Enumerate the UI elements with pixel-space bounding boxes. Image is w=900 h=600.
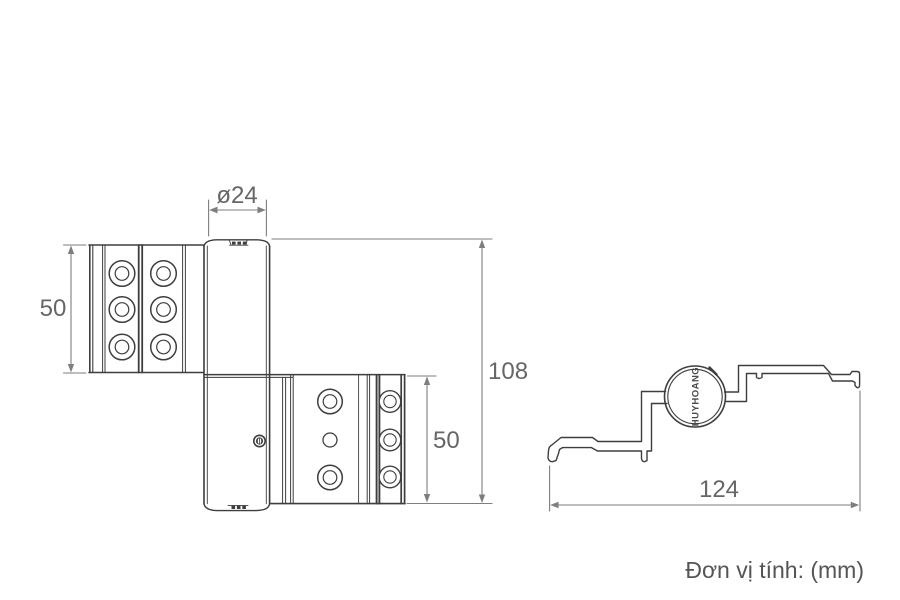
right-frame-profile xyxy=(725,366,860,402)
front-view: 50 ø24 108 50 xyxy=(40,182,528,511)
section-view: HUYHOANG 124 xyxy=(548,366,860,512)
barrel-section: HUYHOANG xyxy=(665,366,726,427)
unit-note: Đơn vị tính: (mm) xyxy=(685,557,864,583)
barrel-top-cap xyxy=(204,240,270,247)
hinge-drawing-svg: 50 ø24 108 50 xyxy=(0,0,900,600)
dim-label-overall-108: 108 xyxy=(488,358,528,385)
dim-label-upper-50: 50 xyxy=(40,295,67,322)
set-screw xyxy=(254,435,265,446)
dim-label-lower-50: 50 xyxy=(433,427,460,454)
dim-label-diameter-24: ø24 xyxy=(216,182,257,209)
lower-leaf xyxy=(270,375,405,503)
dim-lower-leaf-height: 50 xyxy=(408,376,460,503)
technical-drawing-page: 50 ø24 108 50 xyxy=(0,0,900,600)
dim-barrel-diameter: ø24 xyxy=(209,182,267,236)
dim-label-width-124: 124 xyxy=(699,476,739,503)
dim-overall-height: 108 xyxy=(272,239,528,504)
dim-upper-leaf-height: 50 xyxy=(40,245,86,373)
upper-leaf xyxy=(89,245,204,373)
lower-leaf-screw-holes xyxy=(318,389,401,490)
left-frame-profile xyxy=(548,392,667,462)
brand-label: HUYHOANG xyxy=(691,367,702,426)
hinge-barrel xyxy=(204,240,405,511)
barrel-bottom-cap xyxy=(204,504,270,511)
